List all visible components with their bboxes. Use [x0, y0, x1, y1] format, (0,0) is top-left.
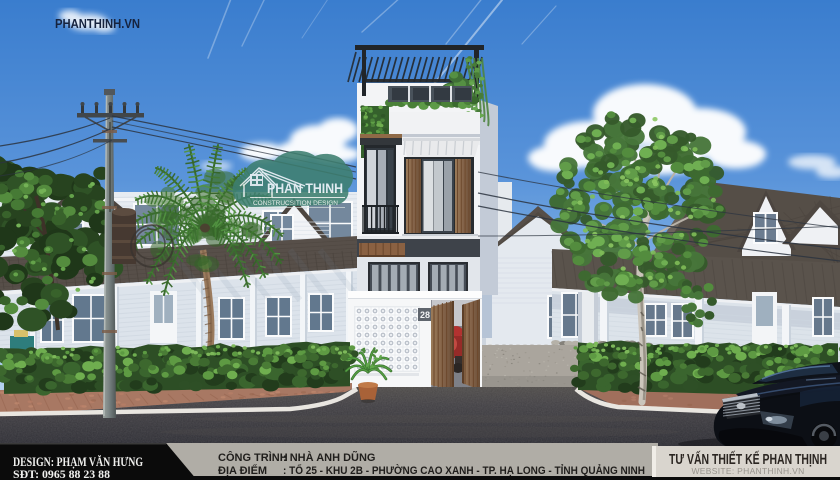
- svg-text:: NHÀ ANH DŨNG: : NHÀ ANH DŨNG: [283, 451, 375, 464]
- svg-text:PHAN THINH: PHAN THINH: [267, 181, 343, 196]
- svg-text:WEBSITE: PHANTHINH.VN: WEBSITE: PHANTHINH.VN: [691, 466, 804, 476]
- svg-text:28: 28: [420, 310, 430, 320]
- svg-text:ĐỊA ĐIỂM: ĐỊA ĐIỂM: [218, 464, 267, 477]
- svg-text:PHANTHINH.VN: PHANTHINH.VN: [55, 17, 140, 31]
- svg-text:: TỔ 25 - KHU 2B - PHƯỜNG CAO: : TỔ 25 - KHU 2B - PHƯỜNG CAO XANH - TP.…: [283, 464, 645, 477]
- svg-text:CONSTRUCSITION DESIGN: CONSTRUCSITION DESIGN: [253, 200, 338, 207]
- svg-text:CÔNG TRÌNH: CÔNG TRÌNH: [218, 451, 288, 464]
- svg-text:SĐT: 0965 88 23 88: SĐT: 0965 88 23 88: [13, 467, 110, 480]
